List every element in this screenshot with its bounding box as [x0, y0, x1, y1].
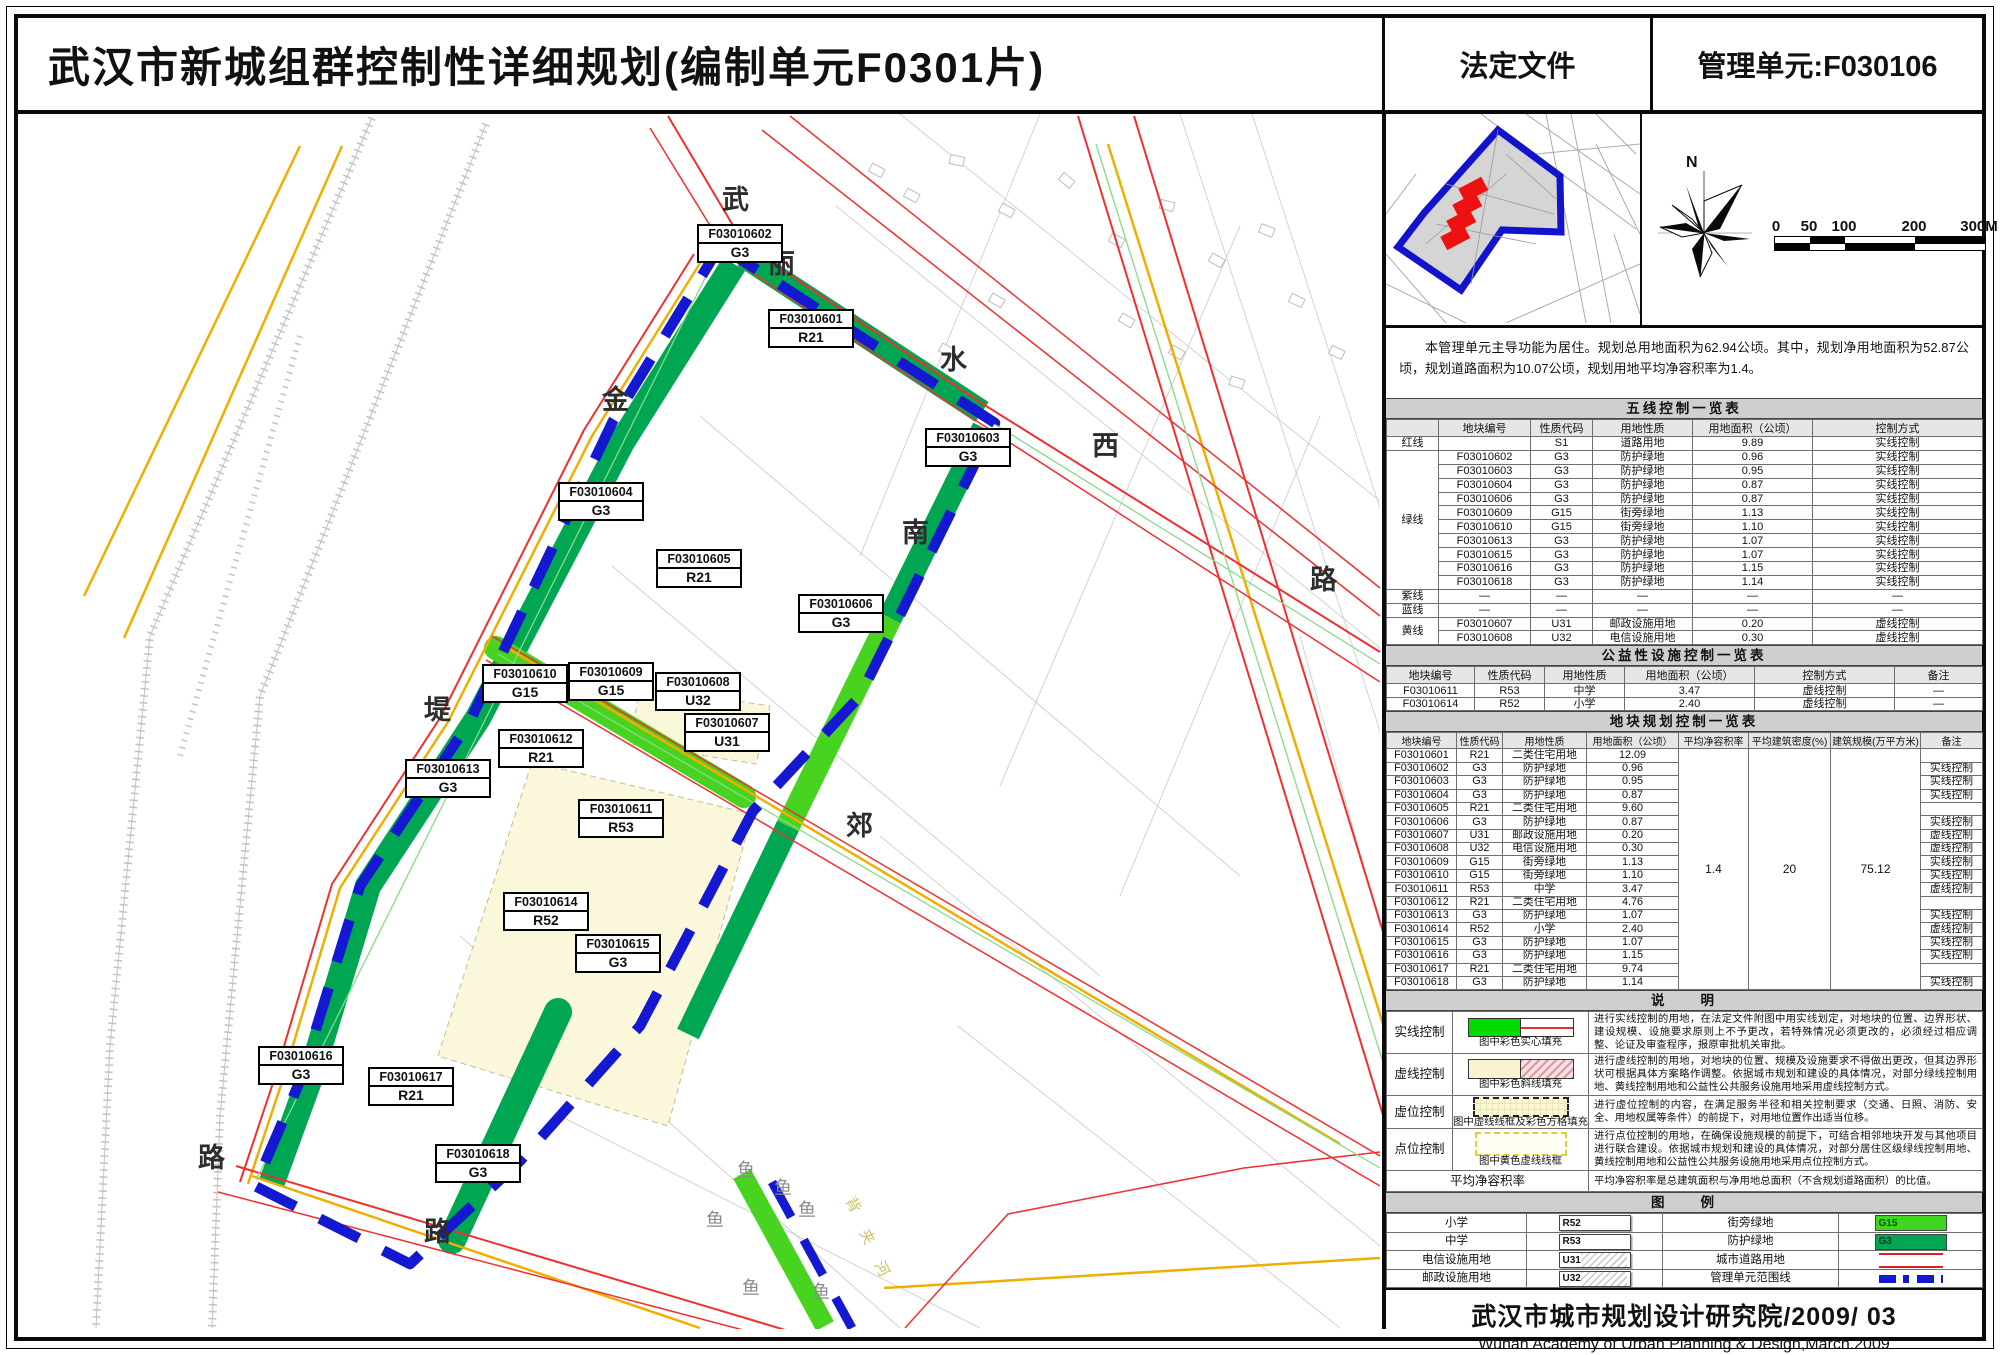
table-row: 虚位控制图中虚线线框及彩色方格填充进行虚位控制的内容，在满足服务半径和相关控制要…	[1387, 1096, 1983, 1129]
compass-petals-outline	[1660, 185, 1742, 277]
table-row: F03010601R21二类住宅用地12.091.42075.12	[1387, 749, 1983, 762]
scale-tick: 0	[1772, 218, 1780, 235]
table-row: F03010611R53中学3.47虚线控制—	[1387, 684, 1983, 698]
header-row: 地块编号性质代码用地性质用地面积（公顷）控制方式	[1387, 420, 1983, 437]
place-name-char: 鱼	[798, 1196, 816, 1222]
table-row: 中学R53防护绿地G3	[1387, 1232, 1983, 1251]
place-name-char: 鱼	[737, 1156, 755, 1182]
table-row: F03010616G3防护绿地1.15实线控制	[1387, 562, 1983, 576]
parcel-table-title: 地块规划控制一览表	[1386, 711, 1982, 732]
parcel-label: F03010612R21	[498, 729, 584, 768]
parcel-label: F03010606G3	[798, 594, 884, 633]
road-name-char: 武	[722, 178, 749, 217]
R53-swatch: R53	[1559, 1234, 1631, 1250]
parcel-label: F03010611R53	[578, 799, 664, 838]
summary-paragraph: 本管理单元主导功能为居住。规划总用地面积为62.94公顷。其中，规划净用地面积为…	[1386, 328, 1982, 398]
page-title: 武汉市新城组群控制性详细规划(编制单元F0301片)	[18, 18, 1382, 110]
scale-tick-labels: 050100200300M	[1774, 218, 1990, 236]
five-line-table-title: 五线控制一览表	[1386, 398, 1982, 419]
road-name-char: 南	[902, 511, 929, 550]
planning-document-page: 武汉市新城组群控制性详细规划(编制单元F0301片) 法定文件 管理单元:F03…	[0, 0, 2000, 1355]
U31-swatch: U31	[1559, 1252, 1631, 1268]
table-row: 紫线—————	[1387, 589, 1983, 603]
parcel-label: F03010603G3	[925, 428, 1011, 467]
road-name-char: 水	[940, 338, 967, 377]
table-row: F03010604G3防护绿地0.87实线控制	[1387, 478, 1983, 492]
solid-swatch: 图中彩色实心填充	[1454, 1018, 1587, 1048]
parcel-label: F03010608U32	[655, 672, 741, 711]
public-facility-table: 地块编号性质代码用地性质用地面积（公顷）控制方式备注F03010611R53中学…	[1386, 666, 1983, 711]
table-row: 实线控制图中彩色实心填充进行实线控制的用地，在法定文件附图中用实线划定，对地块的…	[1387, 1012, 1983, 1054]
ydash-swatch: 图中黄色虚线线框	[1454, 1132, 1587, 1167]
parcel-label: F03010605R21	[656, 549, 742, 588]
document-content: 武汉市新城组群控制性详细规划(编制单元F0301片) 法定文件 管理单元:F03…	[14, 14, 1986, 1341]
table-row: 虚线控制图中彩色斜线填充进行虚线控制的用地，对地块的位置、规模及设施要求不得做出…	[1387, 1054, 1983, 1096]
road-name-char: 路	[424, 1210, 451, 1249]
public-facility-section: 公益性设施控制一览表 地块编号性质代码用地性质用地面积（公顷）控制方式备注F03…	[1386, 645, 1982, 711]
legend-section: 图 例 小学R52街旁绿地G15中学R53防护绿地G3电信设施用地U31城市道路…	[1386, 1192, 1982, 1288]
title-bar: 武汉市新城组群控制性详细规划(编制单元F0301片) 法定文件 管理单元:F03…	[18, 18, 1982, 114]
north-label: N	[1686, 154, 1698, 171]
table-row: 电信设施用地U31城市道路用地	[1387, 1251, 1983, 1270]
notes-title: 说 明	[1386, 990, 1982, 1011]
table-row: F03010609G15街旁绿地1.13实线控制	[1387, 506, 1983, 520]
scale-tick: 50	[1801, 218, 1818, 235]
parcel-label: F03010618G3	[435, 1144, 521, 1183]
road-name-char: 路	[1310, 558, 1337, 597]
table-row: F03010608U32电信设施用地0.30虚线控制	[1387, 631, 1983, 645]
locator-compass-row: N	[1386, 114, 1982, 328]
parcel-label: F03010617R21	[368, 1067, 454, 1106]
place-name-char: 鱼	[706, 1206, 724, 1232]
table-row: F03010614R52小学2.40虚线控制—	[1387, 697, 1983, 711]
parcel-label: F03010614R52	[503, 892, 589, 931]
table-row: F03010618G3防护绿地1.14实线控制	[1387, 575, 1983, 589]
scale-tick: 300M	[1960, 218, 1998, 235]
parcel-label: F03010616G3	[258, 1046, 344, 1085]
table-row: F03010613G3防护绿地1.07实线控制	[1387, 534, 1983, 548]
notes-table: 实线控制图中彩色实心填充进行实线控制的用地，在法定文件附图中用实线划定，对地块的…	[1386, 1011, 1983, 1192]
R52-swatch: R52	[1559, 1215, 1631, 1231]
notes-section: 说 明 实线控制图中彩色实心填充进行实线控制的用地，在法定文件附图中用实线划定，…	[1386, 990, 1982, 1192]
boundary-swatch	[1879, 1275, 1943, 1283]
road-swatch	[1879, 1253, 1943, 1268]
parcel-label: F03010602G3	[697, 224, 783, 263]
table-row: 邮政设施用地U32管理单元范围线	[1387, 1269, 1983, 1288]
table-row: 小学R52街旁绿地G15	[1387, 1214, 1983, 1233]
publisher-cn: 武汉市城市规划设计研究院/2009/ 03	[1386, 1297, 1982, 1333]
U32-swatch: U32	[1559, 1271, 1631, 1287]
compass-rose: N	[1642, 145, 1768, 295]
parcel-label: F03010610G15	[482, 664, 568, 703]
table-row: 红线S1道路用地9.89实线控制	[1387, 437, 1983, 451]
road-name-char: 西	[1092, 424, 1119, 463]
parcel-label: F03010601R21	[768, 309, 854, 348]
public-table-title: 公益性设施控制一览表	[1386, 645, 1982, 666]
road-name-char: 路	[198, 1136, 225, 1175]
management-unit-cell: 管理单元:F030106	[1650, 18, 1982, 110]
five-line-table: 地块编号性质代码用地性质用地面积（公顷）控制方式红线S1道路用地9.89实线控制…	[1386, 419, 1983, 645]
parcel-control-section: 地块规划控制一览表 地块编号性质代码用地性质用地面积（公顷）平均净容积率平均建筑…	[1386, 711, 1982, 990]
parcel-label: F03010609G15	[568, 662, 654, 701]
locator-map-drawing	[1386, 114, 1640, 323]
publisher-en: Wuhan Academy of Urban Planning & Design…	[1386, 1336, 1982, 1354]
road-name-char: 郊	[846, 804, 873, 843]
header-row: 地块编号性质代码用地性质用地面积（公顷）平均净容积率平均建筑密度(%)建筑规模(…	[1387, 733, 1983, 749]
compass-scale-cell: N	[1642, 114, 1990, 325]
planning-map: F03010602G3F03010601R21F03010603G3F03010…	[18, 114, 1382, 1329]
legend-title: 图 例	[1386, 1192, 1982, 1213]
header-row: 地块编号性质代码用地性质用地面积（公顷）控制方式备注	[1387, 667, 1983, 684]
table-row: 黄线F03010607U31邮政设施用地0.20虚线控制	[1387, 617, 1983, 631]
parcel-label: F03010607U31	[684, 713, 770, 752]
doc-type-cell: 法定文件	[1382, 18, 1650, 110]
table-row: F03010603G3防护绿地0.95实线控制	[1387, 464, 1983, 478]
table-row: F03010615G3防护绿地1.07实线控制	[1387, 548, 1983, 562]
parcel-control-table: 地块编号性质代码用地性质用地面积（公顷）平均净容积率平均建筑密度(%)建筑规模(…	[1386, 732, 1983, 990]
dash-swatch: 图中虚线线框及彩色方格填充	[1454, 1097, 1587, 1128]
place-name-char: 鱼	[742, 1274, 760, 1300]
parcel-label: F03010604G3	[558, 482, 644, 521]
hatch-swatch: 图中彩色斜线填充	[1454, 1059, 1587, 1090]
road-name-char: 堤	[424, 688, 451, 727]
scale-bar: 050100200300M	[1774, 218, 1990, 251]
legend-table: 小学R52街旁绿地G15中学R53防护绿地G3电信设施用地U31城市道路用地邮政…	[1386, 1213, 1983, 1288]
scale-tick: 100	[1831, 218, 1856, 235]
parcel-label: F03010615G3	[575, 934, 661, 973]
table-row: F03010610G15街旁绿地1.10实线控制	[1387, 520, 1983, 534]
road-name-char: 金	[602, 378, 629, 417]
attribution-footer: 武汉市城市规划设计研究院/2009/ 03 Wuhan Academy of U…	[1386, 1288, 1982, 1352]
five-line-section: 五线控制一览表 地块编号性质代码用地性质用地面积（公顷）控制方式红线S1道路用地…	[1386, 398, 1982, 645]
locator-inset-map	[1386, 114, 1642, 325]
table-row: 蓝线—————	[1387, 603, 1983, 617]
scale-tick: 200	[1901, 218, 1926, 235]
parcel-label: F03010613G3	[405, 759, 491, 798]
table-row: 绿线F03010602G3防护绿地0.96实线控制	[1387, 450, 1983, 464]
place-name-char: 鱼	[812, 1278, 830, 1304]
table-row: 点位控制图中黄色虚线线框进行点位控制的用地，在确保设施规模的前提下，可结合相邻地…	[1387, 1129, 1983, 1171]
info-panel: N	[1382, 114, 1982, 1329]
table-row: 平均净容积率平均净容积率是总建筑面积与净用地总面积（不含规划道路面积）的比值。	[1387, 1171, 1983, 1192]
table-row: F03010606G3防护绿地0.87实线控制	[1387, 492, 1983, 506]
scale-bar-graphic	[1774, 236, 1986, 251]
place-name-char: 鱼	[774, 1174, 792, 1200]
